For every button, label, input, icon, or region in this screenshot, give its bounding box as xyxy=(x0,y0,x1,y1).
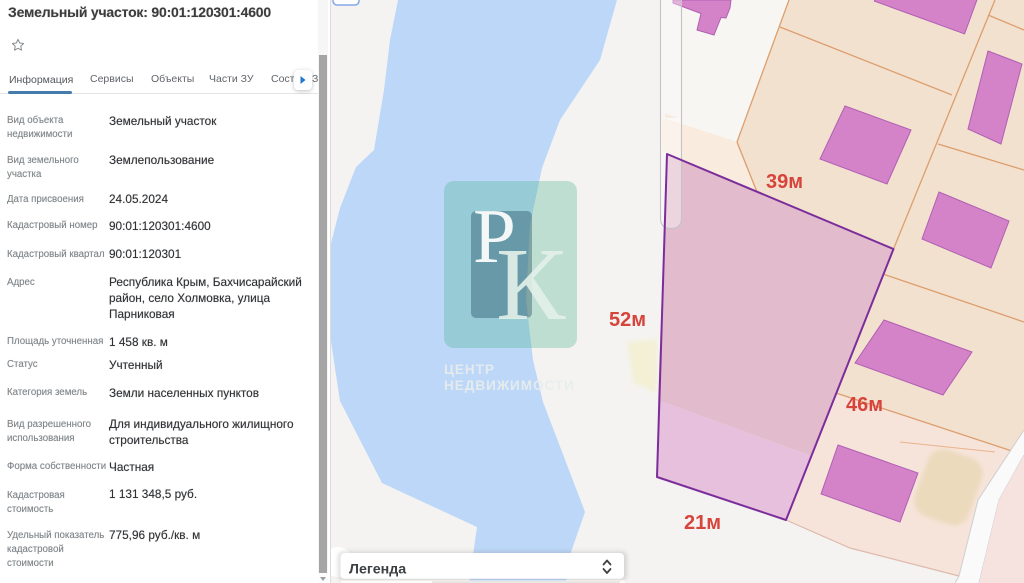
svg-text:Легенда: Легенда xyxy=(349,561,406,577)
svg-text:39м: 39м xyxy=(766,171,803,193)
svg-text:52м: 52м xyxy=(609,309,646,331)
svg-text:21м: 21м xyxy=(684,512,721,534)
svg-text:К: К xyxy=(496,227,566,342)
svg-text:НЕДВИЖИМОСТИ: НЕДВИЖИМОСТИ xyxy=(444,378,575,393)
svg-text:ЦЕНТР: ЦЕНТР xyxy=(444,362,495,377)
svg-text:46м: 46м xyxy=(846,394,883,416)
